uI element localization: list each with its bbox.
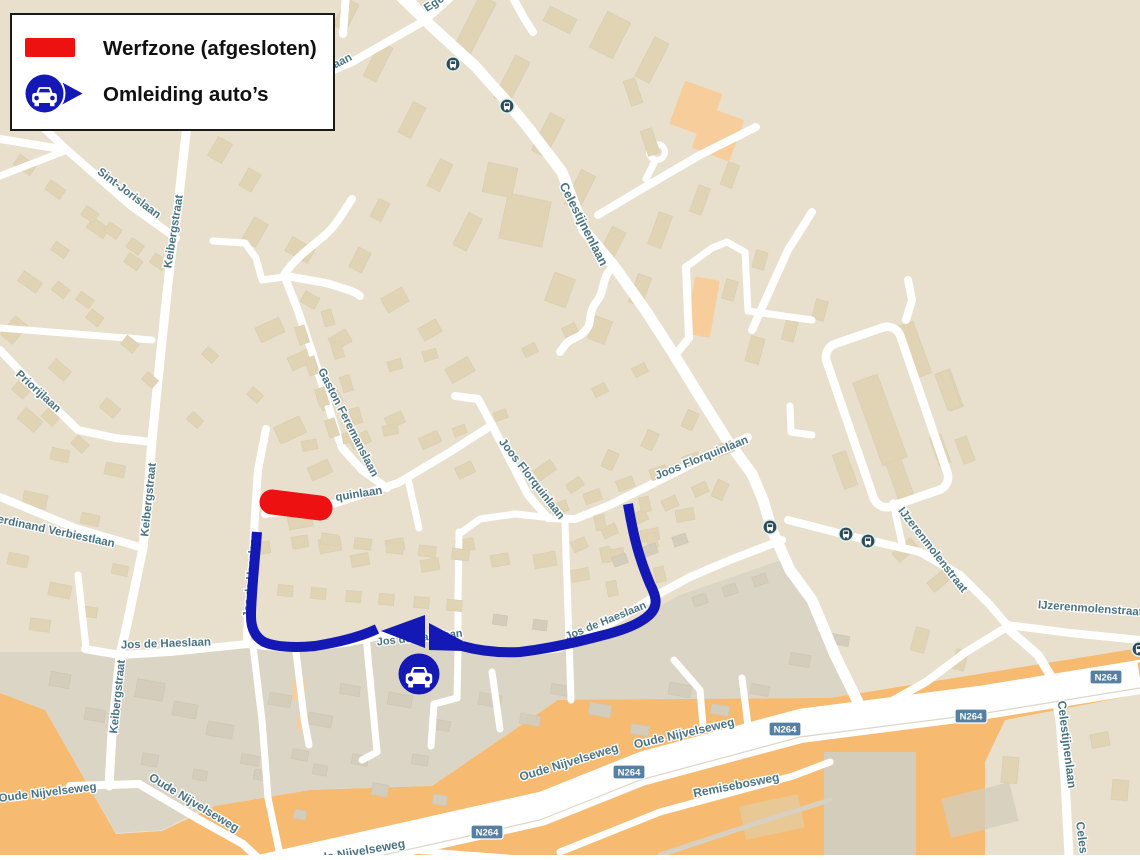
svg-text:Werfzone (afgesloten): Werfzone (afgesloten) — [103, 37, 317, 60]
svg-text:N264: N264 — [476, 828, 499, 839]
svg-text:N264: N264 — [960, 712, 983, 723]
svg-text:N264: N264 — [774, 725, 797, 736]
svg-text:Omleiding auto’s: Omleiding auto’s — [103, 83, 269, 106]
svg-text:N264: N264 — [1095, 673, 1118, 684]
svg-text:N264: N264 — [618, 768, 641, 779]
